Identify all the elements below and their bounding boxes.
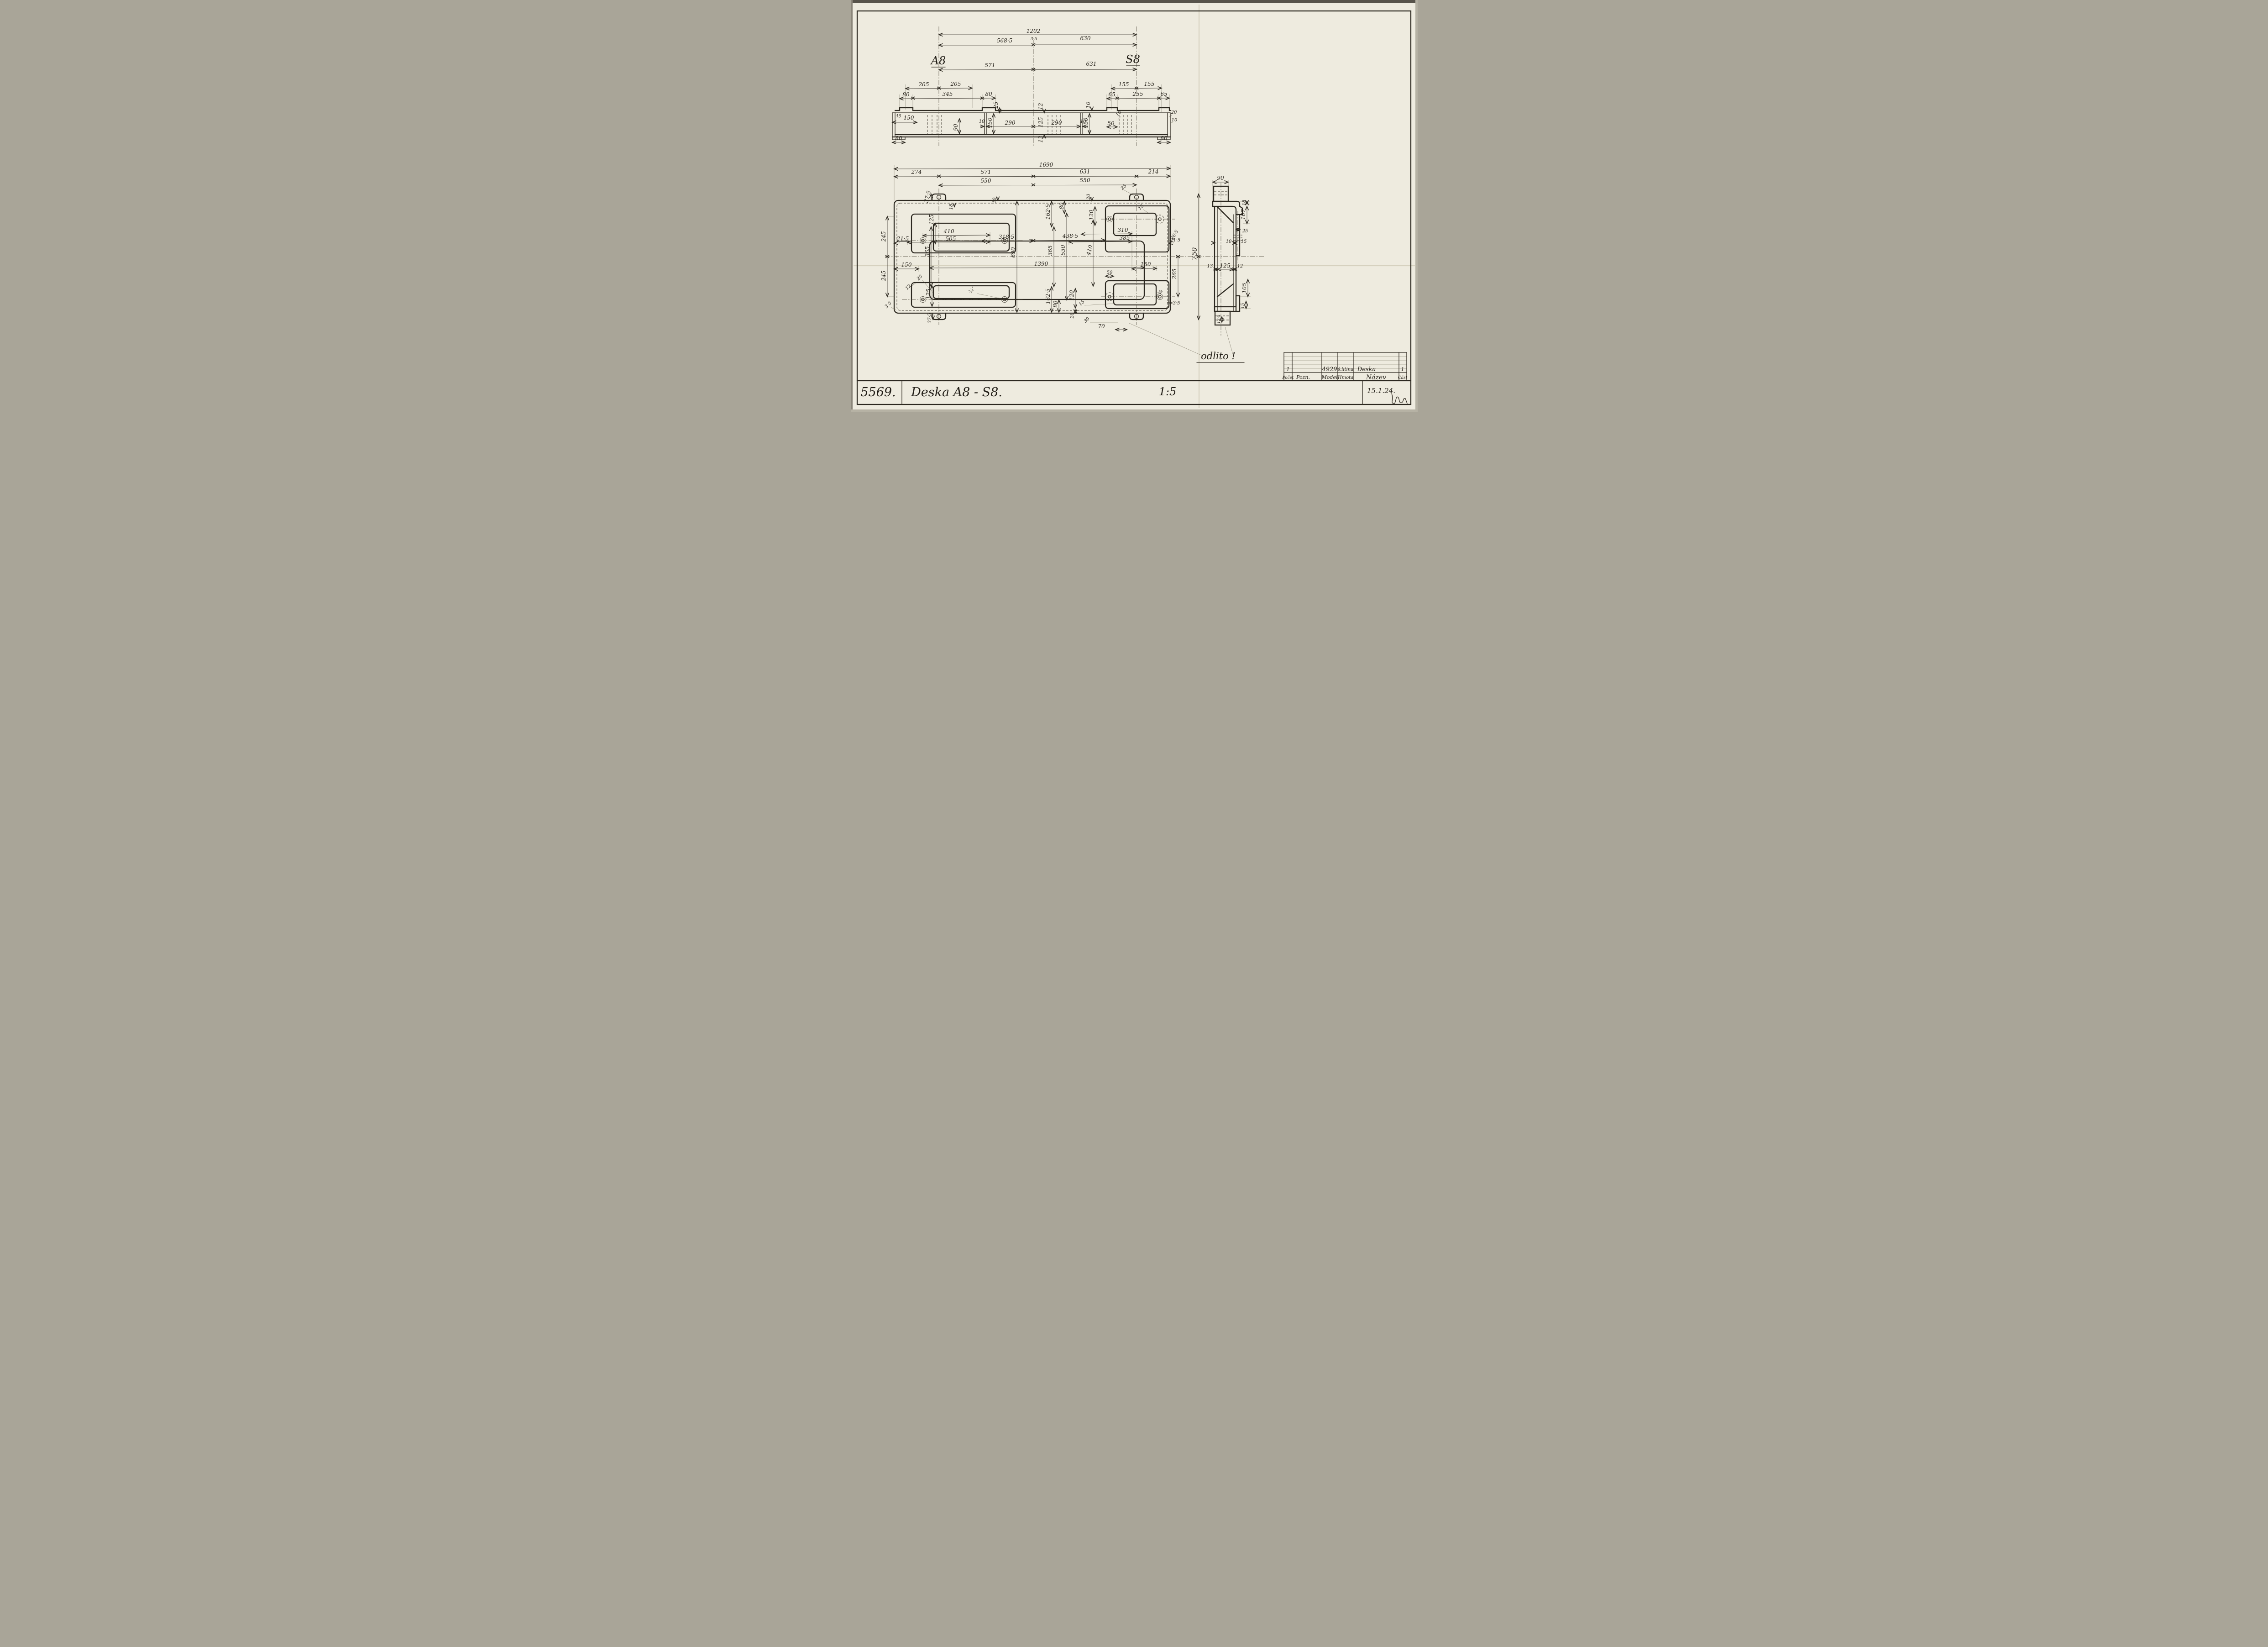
dimension-label: 150 [1140,261,1151,268]
dimension-label: 631 [1086,61,1096,67]
dimension-label: 290 [1051,120,1062,126]
dimension-label: 550 [980,178,991,184]
dimension-label: 125 [928,215,935,225]
dimension-label: 15 [1241,303,1246,309]
dimension-label: 571 [985,62,995,68]
dimension-label: 50 [1106,270,1112,275]
dimension-label: 80 [902,91,910,98]
odlito-note: odlito ! [1201,351,1236,362]
scan-edge-right [1415,0,1418,412]
dimension-label: 365 [924,247,931,257]
dimension-label: 12 [1237,264,1243,269]
tb-header-hmota: Hmota [1337,375,1353,380]
dimension-label: r=3·5 [1167,301,1180,306]
dimension-label: 105 [1241,283,1247,294]
dimension-label: 438·5 [1062,233,1078,239]
dimension-label: 90 [953,124,959,131]
dimension-label: 12 [1037,103,1044,110]
tb-value-nazev: Deska [1357,366,1375,373]
dimension-label: 385 [1119,235,1130,241]
dimension-label: 505 [945,236,956,242]
dimension-label: 155 [1144,81,1154,87]
dimension-label: 150 [901,262,911,268]
tb-value-hmota: š.litina [1337,367,1353,372]
drawing-number: 5569. [860,385,896,399]
dimension-label: 205 [918,81,929,88]
dimension-label: 631 [1079,168,1090,175]
dimension-label: 365 [1047,246,1053,256]
tb-value-model: 4929 [1321,366,1337,373]
dimension-label: 10 [1085,101,1091,109]
dimension-label: 255 [1132,91,1143,97]
dimension-label: 13 [1037,136,1044,143]
a8-label: A8 [930,54,946,67]
dimension-label: 571 [980,169,991,175]
dimension-label: 37·5 [927,313,932,323]
dimension-label: 21·5 [1169,238,1180,243]
dimension-label: 162·5 [1045,288,1051,304]
dimension-label: 25 [993,101,999,109]
dimension-label: 162·5 [1045,204,1051,220]
dimension-label: 15 [896,114,901,119]
dimension-label: 13 [1207,264,1213,269]
dimension-label: 15 [1241,239,1247,244]
dimension-label: 550 [1079,177,1090,184]
scan-edge-left [851,0,853,412]
dimension-label: 345 [942,91,953,97]
dimension-label: 3·5 [1030,37,1037,42]
dimension-label: 70 [1098,323,1105,330]
dimension-label: 290 [1004,120,1015,126]
dimension-label: 150 [1083,117,1089,128]
dimension-label: 1690 [1039,162,1053,168]
dimension-label: 690 [1010,247,1016,257]
dimension-label: 120 [1069,290,1075,300]
dimension-label: 12·5 [1217,315,1221,324]
scan-edge-bottom [851,409,1418,412]
dimension-label: 410 [943,228,954,235]
dimension-label: 125 [1037,117,1044,128]
dimension-label: 10 [1171,118,1177,123]
dimension-label: 18 [1242,200,1247,206]
dimension-label: 150 [903,115,914,121]
dimension-label: 65 [1108,91,1115,98]
dimension-label: 150 [987,117,993,128]
s8-label: S8 [1126,53,1140,66]
tb-value-pocet: 1 [1286,366,1290,372]
dimension-label: 107 [1240,209,1247,220]
dimension-label: 274 [911,169,922,175]
dimension-label: 125 [1220,262,1230,269]
dimension-label: 125 [925,289,932,299]
blueprint-canvas: A8 S8 odlito ! 1 4929 š.litina Deska 1 P… [851,0,1418,412]
dimension-label: 65 [1160,91,1167,97]
dimension-label: 50 [1107,120,1115,126]
dimension-label: 318·5 [998,234,1014,240]
dimension-label: 25 [1241,229,1248,234]
dimension-label: 1390 [1034,261,1048,267]
dimension-label: 80 [1058,202,1065,210]
dimension-label: 205 [950,81,961,87]
tb-header-pocet: Počet [1282,375,1294,380]
dimension-label: 750 [1190,247,1199,260]
tb-header-nazev: Název [1365,374,1386,381]
dimension-label: 20 [1170,110,1177,115]
dimension-label: 80 [895,135,902,142]
dimension-label: 21·5 [896,236,909,242]
dimension-label: 80 [985,91,992,97]
date-value: 15.1.24. [1367,387,1395,395]
drawing-sheet: A8 S8 odlito ! 1 4929 š.litina Deska 1 P… [851,0,1418,412]
dimension-label: 245 [880,271,887,282]
dimension-label: 630 [1080,35,1090,42]
dimension-label: 90 [1217,175,1224,181]
dimension-label: 568·5 [996,37,1012,44]
dimension-label: 20 [1070,312,1075,319]
dimension-label: 214 [1147,168,1158,175]
dimension-label: 10 [979,119,985,124]
dimension-label: 530 [1060,245,1066,255]
dimension-label: 20 [1086,194,1091,200]
dimension-label: 80 [1052,300,1058,308]
dimension-label: 265 [1171,269,1178,280]
tb-header-cast: Část [1398,375,1407,380]
dimension-label: 1202 [1026,28,1040,34]
tb-header-model: Model [1321,374,1337,380]
dimension-label: 10 [1226,239,1231,244]
scan-edge-top [851,0,1418,3]
tb-value-cast: 1 [1401,366,1404,372]
dimension-label: 120 [1088,210,1095,220]
dimension-label: 310 [1117,227,1128,233]
dimension-label: 245 [880,231,887,242]
tb-header-pozn: Pozn. [1296,374,1310,380]
dimension-label: 18 [949,204,954,210]
scale-value: 1:5 [1158,385,1176,398]
dimension-label: 80 [1160,135,1168,142]
drawing-title: Deska A8 - S8. [911,385,1002,399]
dimension-label: 10 [992,197,997,203]
dimension-label: 155 [1118,81,1129,88]
